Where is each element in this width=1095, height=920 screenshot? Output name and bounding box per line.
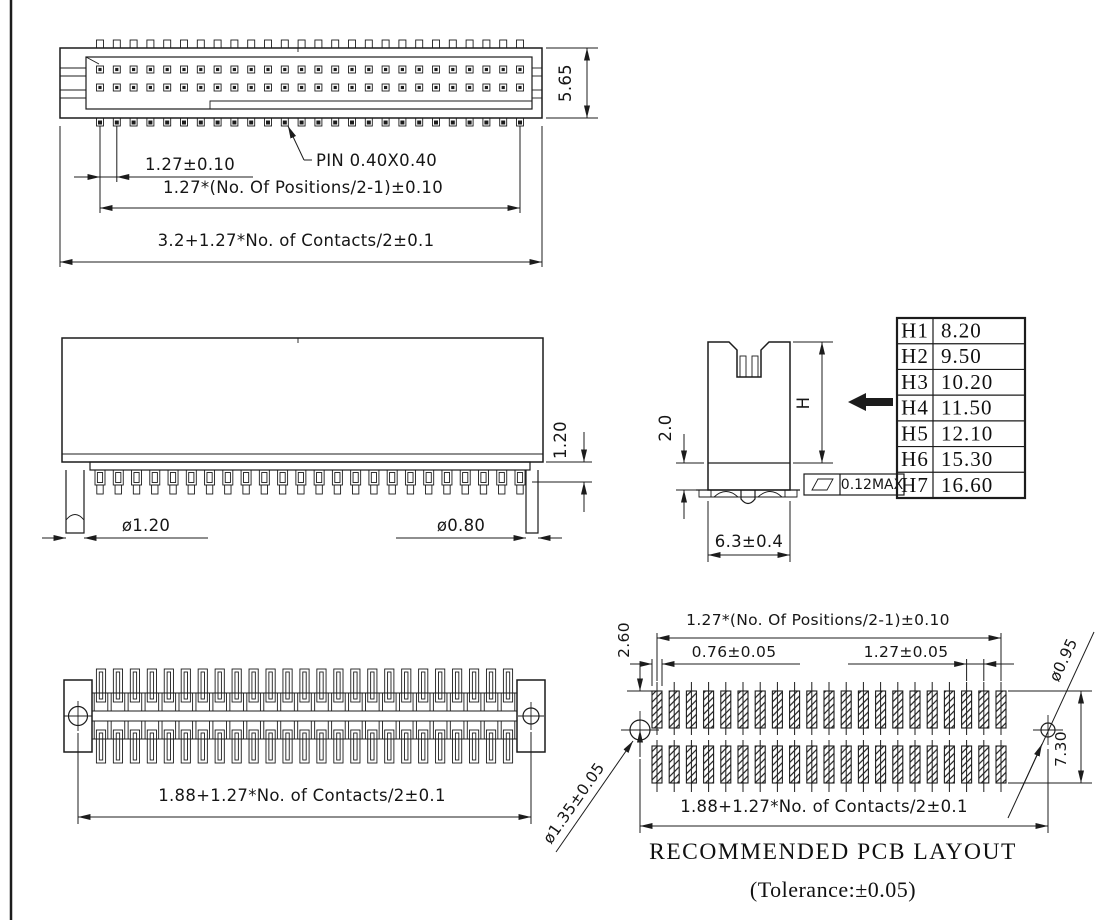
- bottom-view-dimensions: 1.88+1.27*No. of Contacts/2±0.1: [78, 732, 531, 824]
- tail-slot: [426, 473, 431, 483]
- tooth-bottom: [469, 730, 478, 763]
- pin-core: [250, 68, 253, 71]
- top-tab: [147, 40, 154, 48]
- bottom-tab-fill: [434, 121, 438, 125]
- bottom-tab-fill: [199, 121, 203, 125]
- tooth-top-slot: [506, 672, 509, 699]
- tail-foot: [352, 485, 358, 494]
- flatness-value: 0.12MAX: [841, 477, 904, 493]
- pin-core: [300, 68, 303, 71]
- dim-hole-large: ø1.35±0.05: [539, 759, 608, 847]
- top-view-pins: [97, 40, 524, 126]
- dim-pin-pitch: 1.27±0.10: [145, 155, 235, 174]
- top-tab: [97, 40, 104, 48]
- dim-right-post: ø0.80: [437, 516, 485, 535]
- tooth-top-slot: [184, 672, 187, 699]
- tail-foot: [462, 485, 468, 494]
- pin-core: [266, 86, 269, 89]
- tooth-top-slot: [472, 672, 475, 699]
- tooth-bottom-slot: [472, 733, 475, 760]
- top-tab: [500, 40, 507, 48]
- bottom-tab-fill: [165, 121, 169, 125]
- pin-core: [182, 68, 185, 71]
- tooth-bottom: [300, 730, 309, 763]
- tail-foot: [225, 485, 231, 494]
- tooth-top-slot: [201, 672, 204, 699]
- h-value: 16.60: [941, 473, 993, 497]
- bottom-view-contacts: [94, 669, 515, 763]
- dim-side-width: 6.3±0.4: [715, 532, 783, 551]
- tooth-top-slot: [218, 672, 221, 699]
- tail-foot: [170, 485, 176, 494]
- tooth-bottom: [130, 730, 139, 763]
- dim-overall-bottom: 1.88+1.27*No. of Contacts/2±0.1: [158, 786, 446, 805]
- tail-foot: [188, 485, 194, 494]
- tooth-top: [436, 669, 445, 702]
- pin-core: [317, 68, 320, 71]
- pin-core: [502, 86, 505, 89]
- tooth-bottom-slot: [438, 733, 441, 760]
- bottom-tab-fill: [484, 121, 488, 125]
- bottom-tab-fill: [148, 121, 152, 125]
- top-tab: [231, 40, 238, 48]
- top-tab: [466, 40, 473, 48]
- pin-core: [418, 86, 421, 89]
- tail-slot: [390, 473, 395, 483]
- tooth-bottom: [232, 730, 241, 763]
- tooth-top: [232, 669, 241, 702]
- tail-slot: [463, 473, 468, 483]
- pin-core: [401, 68, 404, 71]
- pin-core: [266, 68, 269, 71]
- tooth-bottom-slot: [133, 733, 136, 760]
- tail-foot: [499, 485, 505, 494]
- tooth-bottom-slot: [455, 733, 458, 760]
- front-view-outline: [62, 338, 543, 533]
- tooth-top: [402, 669, 411, 702]
- tail-slot: [280, 473, 285, 483]
- dim-row-span: 7.30: [1052, 731, 1070, 767]
- tooth-bottom: [402, 730, 411, 763]
- tail-slot: [152, 473, 157, 483]
- tooth-bottom: [385, 730, 394, 763]
- tooth-top-slot: [286, 672, 289, 699]
- top-tab: [113, 40, 120, 48]
- top-tab: [181, 40, 188, 48]
- bottom-tab-fill: [249, 121, 253, 125]
- dim-lower-body: 2.0: [656, 414, 675, 441]
- bottom-tab-fill: [333, 121, 337, 125]
- tooth-top-slot: [422, 672, 425, 699]
- tail-slot: [298, 473, 303, 483]
- tail-foot: [316, 485, 322, 494]
- tooth-bottom: [368, 730, 377, 763]
- tail-slot: [170, 473, 175, 483]
- tooth-top-slot: [133, 672, 136, 699]
- bottom-tab-fill: [232, 121, 236, 125]
- tooth-top-slot: [99, 672, 102, 699]
- tooth-top-slot: [150, 672, 153, 699]
- tooth-bottom: [113, 730, 122, 763]
- bottom-tab-fill: [132, 121, 136, 125]
- bottom-tab-fill: [266, 121, 270, 125]
- tooth-bottom-slot: [218, 733, 221, 760]
- tooth-bottom-slot: [422, 733, 425, 760]
- pin-core: [350, 86, 353, 89]
- tooth-top: [486, 669, 495, 702]
- dim-hole-small: ø0.95: [1046, 635, 1082, 684]
- pin-core: [216, 86, 219, 89]
- tooth-top-slot: [235, 672, 238, 699]
- pin-core: [233, 86, 236, 89]
- tooth-bottom: [436, 730, 445, 763]
- pin-core: [418, 68, 421, 71]
- bottom-tab-fill: [98, 121, 102, 125]
- h-code: H5: [901, 421, 929, 445]
- top-tab: [197, 40, 204, 48]
- tail-slot: [207, 473, 212, 483]
- pin-core: [149, 68, 152, 71]
- dim-positions: 1.27*(No. Of Positions/2-1)±0.10: [163, 178, 443, 197]
- side-view-outline: [696, 342, 800, 504]
- bottom-tab-fill: [350, 121, 354, 125]
- tail-foot: [334, 485, 340, 494]
- pin-core: [451, 68, 454, 71]
- tooth-top-slot: [371, 672, 374, 699]
- tail-slot: [371, 473, 376, 483]
- tooth-top: [503, 669, 512, 702]
- h-code: H6: [901, 447, 929, 471]
- tooth-top: [283, 669, 292, 702]
- tooth-bottom-slot: [303, 733, 306, 760]
- pcb-pads: [652, 682, 1006, 792]
- pin-core: [199, 68, 202, 71]
- h-code: H7: [901, 473, 929, 497]
- bottom-tab-fill: [518, 121, 522, 125]
- top-tab: [332, 40, 339, 48]
- h-value: 15.30: [941, 447, 993, 471]
- pin-core: [485, 68, 488, 71]
- dim-standoff: 1.20: [551, 421, 570, 459]
- bottom-tab-fill: [468, 121, 472, 125]
- h-value: 8.20: [941, 319, 982, 343]
- tooth-bottom-slot: [506, 733, 509, 760]
- tooth-bottom: [334, 730, 343, 763]
- bottom-tab-fill: [316, 121, 320, 125]
- top-tab: [365, 40, 372, 48]
- tooth-bottom: [486, 730, 495, 763]
- bottom-tab-fill: [367, 121, 371, 125]
- tooth-bottom-slot: [371, 733, 374, 760]
- tooth-top-slot: [116, 672, 119, 699]
- pin-core: [115, 86, 118, 89]
- tooth-bottom-slot: [269, 733, 272, 760]
- pin-core: [334, 68, 337, 71]
- top-tab: [298, 40, 305, 48]
- tooth-top: [300, 669, 309, 702]
- top-tab: [399, 40, 406, 48]
- tooth-top-slot: [489, 672, 492, 699]
- pin-core: [502, 68, 505, 71]
- tooth-bottom: [181, 730, 190, 763]
- tail-foot: [133, 485, 139, 494]
- tooth-bottom-slot: [184, 733, 187, 760]
- tooth-bottom-slot: [201, 733, 204, 760]
- bottom-tab-fill: [283, 121, 287, 125]
- top-tab: [416, 40, 423, 48]
- tail-foot: [425, 485, 431, 494]
- dim-height-label: H: [794, 397, 813, 410]
- pin-core: [166, 86, 169, 89]
- h-value: 10.20: [941, 370, 993, 394]
- pin-core: [98, 68, 101, 71]
- tooth-top: [249, 669, 258, 702]
- h-value: 9.50: [941, 344, 982, 368]
- h-code: H3: [901, 370, 929, 394]
- tooth-top: [368, 669, 377, 702]
- dim-pad-offset: 2.60: [615, 622, 633, 658]
- top-tab: [349, 40, 356, 48]
- tooth-top-slot: [252, 672, 255, 699]
- tail-slot: [408, 473, 413, 483]
- pcb-layout-title: RECOMMENDED PCB LAYOUT: [649, 839, 1017, 865]
- pin-core: [216, 68, 219, 71]
- tooth-bottom-slot: [489, 733, 492, 760]
- top-tab: [449, 40, 456, 48]
- pin-core: [384, 68, 387, 71]
- tail-foot: [97, 485, 103, 494]
- tooth-bottom-slot: [167, 733, 170, 760]
- tooth-top-slot: [303, 672, 306, 699]
- front-view-pins: [95, 470, 525, 494]
- tail-foot: [279, 485, 285, 494]
- pin-core: [300, 86, 303, 89]
- pin-core: [401, 86, 404, 89]
- tail-slot: [499, 473, 504, 483]
- tooth-bottom-slot: [320, 733, 323, 760]
- top-tab: [164, 40, 171, 48]
- tail-foot: [480, 485, 486, 494]
- pin-core: [283, 86, 286, 89]
- bottom-tab-fill: [300, 121, 304, 125]
- tooth-bottom: [249, 730, 258, 763]
- tail-foot: [152, 485, 158, 494]
- tail-slot: [116, 473, 121, 483]
- h-value: 12.10: [941, 421, 993, 445]
- connector-drawing: 1.27±0.10 PIN 0.40X0.40 1.27*(No. Of Pos…: [0, 0, 1095, 920]
- pin-core: [132, 86, 135, 89]
- top-tab: [315, 40, 322, 48]
- h-code: H4: [901, 396, 929, 420]
- tooth-top: [113, 669, 122, 702]
- tooth-bottom-slot: [116, 733, 119, 760]
- flatness-symbol-icon: [812, 479, 833, 490]
- tail-foot: [206, 485, 212, 494]
- tooth-top-slot: [388, 672, 391, 699]
- tooth-bottom-slot: [388, 733, 391, 760]
- tail-slot: [517, 473, 522, 483]
- tooth-top-slot: [438, 672, 441, 699]
- tooth-top-slot: [354, 672, 357, 699]
- pin-core: [250, 86, 253, 89]
- pin-core: [451, 86, 454, 89]
- tooth-top-slot: [167, 672, 170, 699]
- top-view-dimensions: 1.27±0.10 PIN 0.40X0.40 1.27*(No. Of Pos…: [60, 48, 598, 267]
- top-tab: [483, 40, 490, 48]
- tooth-bottom-slot: [405, 733, 408, 760]
- tooth-bottom-slot: [354, 733, 357, 760]
- top-view-outline: [60, 48, 542, 118]
- tooth-top: [351, 669, 360, 702]
- tail-foot: [115, 485, 121, 494]
- tail-slot: [134, 473, 139, 483]
- pin-core: [283, 68, 286, 71]
- tooth-bottom: [266, 730, 275, 763]
- dim-pcb-overall: 1.88+1.27*No. of Contacts/2±0.1: [680, 797, 968, 816]
- tail-foot: [389, 485, 395, 494]
- pin-core: [115, 68, 118, 71]
- tooth-bottom-slot: [150, 733, 153, 760]
- tail-foot: [444, 485, 450, 494]
- tail-slot: [481, 473, 486, 483]
- bottom-tab-fill: [182, 121, 186, 125]
- pin-core: [334, 86, 337, 89]
- tooth-top: [164, 669, 173, 702]
- bottom-tab-fill: [400, 121, 404, 125]
- tail-foot: [517, 485, 523, 494]
- pin-core: [485, 86, 488, 89]
- pin-core: [98, 86, 101, 89]
- tail-slot: [97, 473, 102, 483]
- dim-pad-width: 0.76±0.05: [692, 643, 777, 661]
- tail-slot: [444, 473, 449, 483]
- tooth-top-slot: [405, 672, 408, 699]
- front-view-dimensions: ø1.20 ø0.80 1.20: [42, 421, 592, 538]
- tooth-bottom: [351, 730, 360, 763]
- bottom-tab-fill: [384, 121, 388, 125]
- side-view-dimensions: 2.0 H 0.12MAX 6.3±0.4: [656, 342, 904, 562]
- top-tab: [281, 40, 288, 48]
- bottom-tab-fill: [451, 121, 455, 125]
- pin-core: [518, 86, 521, 89]
- tooth-top: [130, 669, 139, 702]
- bottom-tab-fill: [216, 121, 220, 125]
- pin-core: [317, 86, 320, 89]
- pin-core: [367, 86, 370, 89]
- h-code: H2: [901, 344, 929, 368]
- tooth-bottom: [215, 730, 224, 763]
- pin-core: [199, 86, 202, 89]
- height-table: H18.20H29.50H310.20H411.50H512.10H615.30…: [897, 318, 1025, 498]
- tooth-bottom: [164, 730, 173, 763]
- top-tab: [265, 40, 272, 48]
- tail-slot: [317, 473, 322, 483]
- tail-foot: [407, 485, 413, 494]
- pin-core: [468, 86, 471, 89]
- dim-left-post: ø1.20: [122, 516, 170, 535]
- dim-pcb-positions: 1.27*(No. Of Positions/2-1)±0.10: [686, 611, 950, 629]
- bottom-tab-fill: [115, 121, 119, 125]
- pin-core: [384, 86, 387, 89]
- tooth-bottom: [317, 730, 326, 763]
- pin-core: [468, 68, 471, 71]
- tail-foot: [371, 485, 377, 494]
- tooth-top-slot: [320, 672, 323, 699]
- tail-slot: [243, 473, 248, 483]
- bottom-tab-fill: [501, 121, 505, 125]
- tail-slot: [225, 473, 230, 483]
- top-tab: [214, 40, 221, 48]
- dim-pad-pitch: 1.27±0.05: [864, 643, 949, 661]
- tooth-top: [198, 669, 207, 702]
- pcb-tolerance-note: (Tolerance:±0.05): [750, 877, 916, 902]
- pin-size-label: PIN 0.40X0.40: [316, 151, 437, 170]
- tooth-bottom-slot: [99, 733, 102, 760]
- tooth-bottom: [96, 730, 105, 763]
- tooth-top: [266, 669, 275, 702]
- tail-slot: [262, 473, 267, 483]
- pin-core: [434, 68, 437, 71]
- tail-foot: [261, 485, 267, 494]
- top-tab: [433, 40, 440, 48]
- bottom-tab-fill: [417, 121, 421, 125]
- tooth-top-slot: [269, 672, 272, 699]
- pin-core: [518, 68, 521, 71]
- tooth-bottom: [198, 730, 207, 763]
- tooth-top: [334, 669, 343, 702]
- tooth-top-slot: [337, 672, 340, 699]
- dim-body-height: 5.65: [556, 64, 575, 102]
- pin-core: [166, 68, 169, 71]
- tooth-top: [419, 669, 428, 702]
- tooth-top: [469, 669, 478, 702]
- top-tab: [517, 40, 524, 48]
- pin-core: [434, 86, 437, 89]
- tooth-top: [147, 669, 156, 702]
- tooth-bottom-slot: [252, 733, 255, 760]
- h-code: H1: [901, 319, 929, 343]
- tooth-top: [317, 669, 326, 702]
- tooth-bottom-slot: [286, 733, 289, 760]
- tail-slot: [335, 473, 340, 483]
- tooth-bottom: [283, 730, 292, 763]
- bottom-view-outline: [64, 680, 545, 752]
- tooth-top-slot: [455, 672, 458, 699]
- pin-core: [350, 68, 353, 71]
- top-tab: [130, 40, 137, 48]
- pin-core: [149, 86, 152, 89]
- tooth-top: [215, 669, 224, 702]
- tooth-bottom: [503, 730, 512, 763]
- pin-core: [233, 68, 236, 71]
- tooth-bottom: [147, 730, 156, 763]
- dim-overall-top: 3.2+1.27*No. of Contacts/2±0.1: [158, 231, 435, 250]
- tooth-bottom: [419, 730, 428, 763]
- pin-core: [132, 68, 135, 71]
- top-tab: [248, 40, 255, 48]
- tooth-top: [181, 669, 190, 702]
- tooth-bottom-slot: [235, 733, 238, 760]
- pin-core: [182, 86, 185, 89]
- tooth-top: [453, 669, 462, 702]
- tail-slot: [189, 473, 194, 483]
- top-tab: [382, 40, 389, 48]
- tail-slot: [353, 473, 358, 483]
- pin-core: [367, 68, 370, 71]
- pcb-dimensions: 1.27*(No. Of Positions/2-1)±0.10 0.76±0.…: [539, 611, 1094, 852]
- tooth-top: [385, 669, 394, 702]
- tooth-bottom-slot: [337, 733, 340, 760]
